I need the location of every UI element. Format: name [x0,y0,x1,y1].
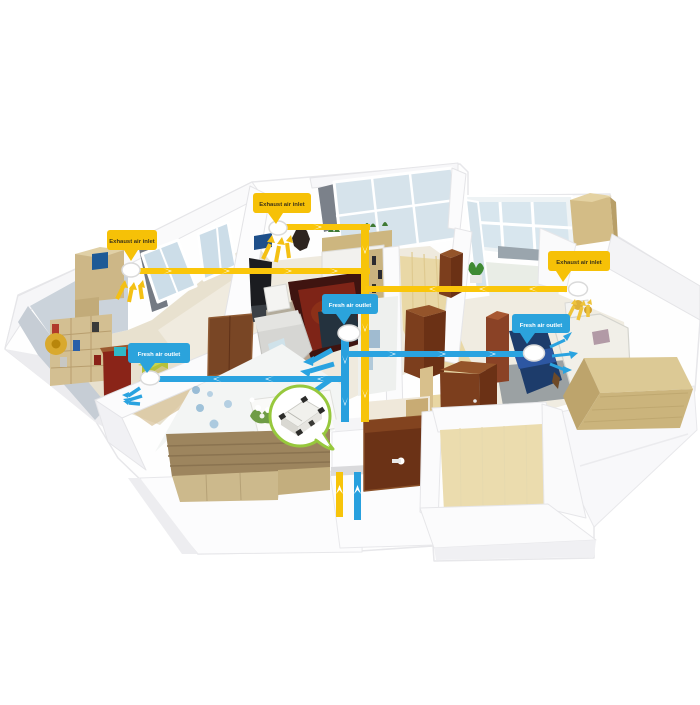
svg-text:Exhaust air inlet: Exhaust air inlet [109,239,155,245]
svg-text:Exhaust air inlet: Exhaust air inlet [259,202,305,208]
svg-text:Fresh air outlet: Fresh air outlet [329,303,372,309]
svg-text:Fresh air outlet: Fresh air outlet [520,323,563,329]
svg-text:Fresh air outlet: Fresh air outlet [138,352,181,358]
svg-text:Exhaust air inlet: Exhaust air inlet [556,260,602,266]
